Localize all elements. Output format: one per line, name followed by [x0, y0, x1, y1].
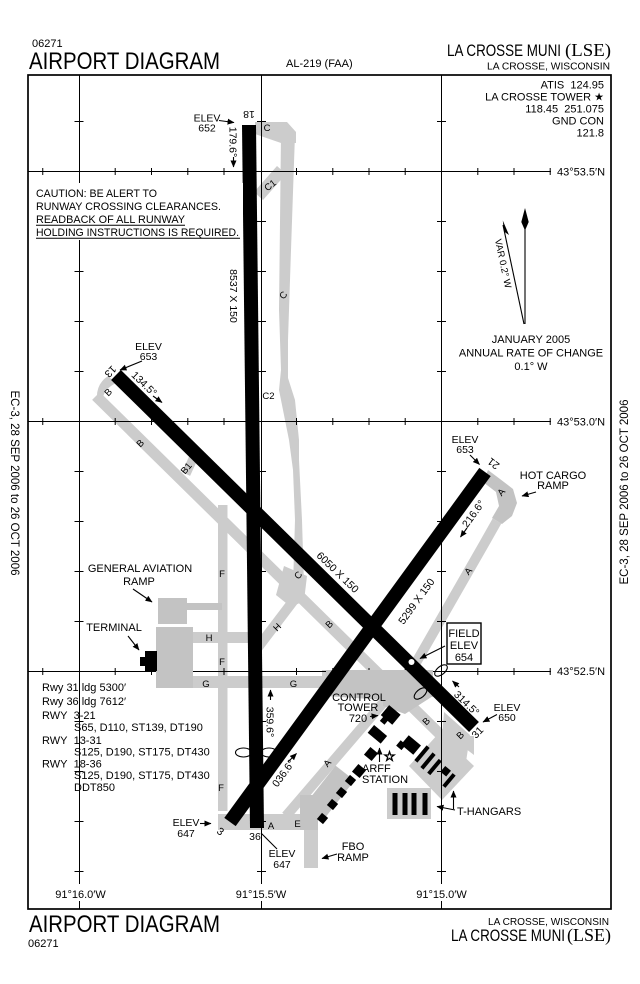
svg-text:179.6°: 179.6°	[227, 127, 239, 157]
svg-text:359.6°: 359.6°	[264, 707, 276, 737]
svg-text:FIELD: FIELD	[448, 628, 479, 640]
svg-text:READBACK OF ALL RUNWAY: READBACK OF ALL RUNWAY	[36, 214, 186, 226]
svg-text:(LSE): (LSE)	[567, 925, 611, 945]
svg-text:AL-219 (FAA): AL-219 (FAA)	[286, 58, 353, 70]
svg-text:EC-3, 28 SEP 2006 to 26 OCT 20: EC-3, 28 SEP 2006 to 26 OCT 2006	[8, 391, 20, 576]
svg-text:91°15.0′W: 91°15.0′W	[416, 889, 467, 901]
svg-text:S125, D190, ST175, DT430: S125, D190, ST175, DT430	[74, 747, 210, 759]
svg-text:653: 653	[140, 351, 158, 363]
svg-text:LA CROSSE, WISCONSIN: LA CROSSE, WISCONSIN	[487, 61, 610, 73]
svg-text:F: F	[219, 657, 225, 668]
svg-text:E: E	[294, 819, 300, 830]
svg-text:91°16.0′W: 91°16.0′W	[55, 889, 106, 901]
svg-text:652: 652	[198, 123, 216, 135]
svg-text:650: 650	[498, 712, 516, 724]
svg-text:DDT850: DDT850	[74, 782, 115, 794]
svg-text:43°52.5′N: 43°52.5′N	[557, 666, 605, 678]
svg-text:653: 653	[456, 444, 474, 456]
svg-text:RWY 18-36: RWY 18-36	[42, 759, 102, 771]
svg-text:647: 647	[273, 859, 291, 871]
svg-text:S65, D110, ST139, DT190: S65, D110, ST139, DT190	[74, 722, 203, 734]
svg-text:RWY 3-21: RWY 3-21	[42, 710, 96, 722]
svg-text:RAMP: RAMP	[537, 480, 569, 492]
svg-text:654: 654	[455, 652, 473, 664]
svg-text:06271: 06271	[28, 938, 59, 950]
svg-text:LA CROSSE MUNI: LA CROSSE MUNI	[447, 42, 561, 60]
svg-text:36: 36	[249, 831, 261, 843]
svg-text:A: A	[268, 821, 275, 832]
svg-text:ELEV: ELEV	[450, 640, 479, 652]
svg-text:720: 720	[349, 713, 367, 725]
svg-text:ANNUAL RATE OF CHANGE: ANNUAL RATE OF CHANGE	[459, 348, 603, 360]
svg-text:F: F	[218, 783, 224, 794]
svg-text:HOLDING INSTRUCTIONS IS REQUIR: HOLDING INSTRUCTIONS IS REQUIRED.	[36, 227, 239, 239]
svg-text:RWY 13-31: RWY 13-31	[42, 735, 102, 747]
svg-text:43°53.5′N: 43°53.5′N	[557, 167, 605, 179]
svg-text:LA CROSSE TOWER ★: LA CROSSE TOWER ★	[485, 92, 604, 104]
svg-text:18: 18	[243, 108, 255, 120]
svg-text:VAR 0.2° W: VAR 0.2° W	[492, 238, 513, 289]
svg-text:118.45 251.075: 118.45 251.075	[525, 104, 604, 116]
svg-text:AIRPORT DIAGRAM: AIRPORT DIAGRAM	[29, 911, 220, 938]
svg-text:F: F	[219, 569, 225, 580]
svg-text:JANUARY 2005: JANUARY 2005	[492, 334, 570, 346]
svg-text:T-HANGARS: T-HANGARS	[457, 806, 521, 818]
svg-text:GENERAL AVIATION: GENERAL AVIATION	[88, 563, 192, 575]
svg-text:TERMINAL: TERMINAL	[86, 622, 142, 634]
svg-text:RAMP: RAMP	[337, 852, 369, 864]
svg-text:G: G	[202, 679, 209, 690]
svg-text:21: 21	[485, 455, 502, 472]
svg-text:RAMP: RAMP	[123, 576, 155, 588]
svg-text:S125, D190, ST175, DT430: S125, D190, ST175, DT430	[74, 770, 210, 782]
svg-text:GND CON: GND CON	[552, 116, 604, 128]
svg-text:0.1° W: 0.1° W	[514, 361, 548, 373]
svg-text:LA CROSSE MUNI: LA CROSSE MUNI	[451, 927, 565, 945]
svg-text:91°15.5′W: 91°15.5′W	[236, 889, 287, 901]
svg-text:G: G	[290, 679, 297, 690]
svg-text:8537 X 150: 8537 X 150	[227, 269, 239, 323]
svg-text:121.8: 121.8	[576, 128, 604, 140]
svg-text:CAUTION: BE ALERT TO: CAUTION: BE ALERT TO	[36, 188, 157, 200]
svg-text:3: 3	[214, 825, 226, 838]
svg-text:647: 647	[177, 828, 195, 840]
svg-text:C2: C2	[262, 391, 274, 402]
svg-text:STATION: STATION	[362, 774, 408, 786]
svg-text:ATIS 124.95: ATIS 124.95	[541, 80, 604, 92]
svg-text:AIRPORT DIAGRAM: AIRPORT DIAGRAM	[29, 48, 220, 75]
svg-text:Rwy 31 ldg 5300′: Rwy 31 ldg 5300′	[42, 682, 126, 694]
svg-text:EC-3, 28 SEP 2006 to 26 OCT 20: EC-3, 28 SEP 2006 to 26 OCT 2006	[619, 400, 631, 585]
svg-text:Rwy 36 ldg 7612′: Rwy 36 ldg 7612′	[42, 696, 126, 708]
svg-text:43°53.0′N: 43°53.0′N	[557, 417, 605, 429]
svg-text:(LSE): (LSE)	[565, 40, 611, 60]
svg-text:C: C	[264, 123, 271, 134]
svg-text:H: H	[206, 633, 213, 644]
svg-text:RUNWAY CROSSING CLEARANCES.: RUNWAY CROSSING CLEARANCES.	[36, 201, 221, 213]
